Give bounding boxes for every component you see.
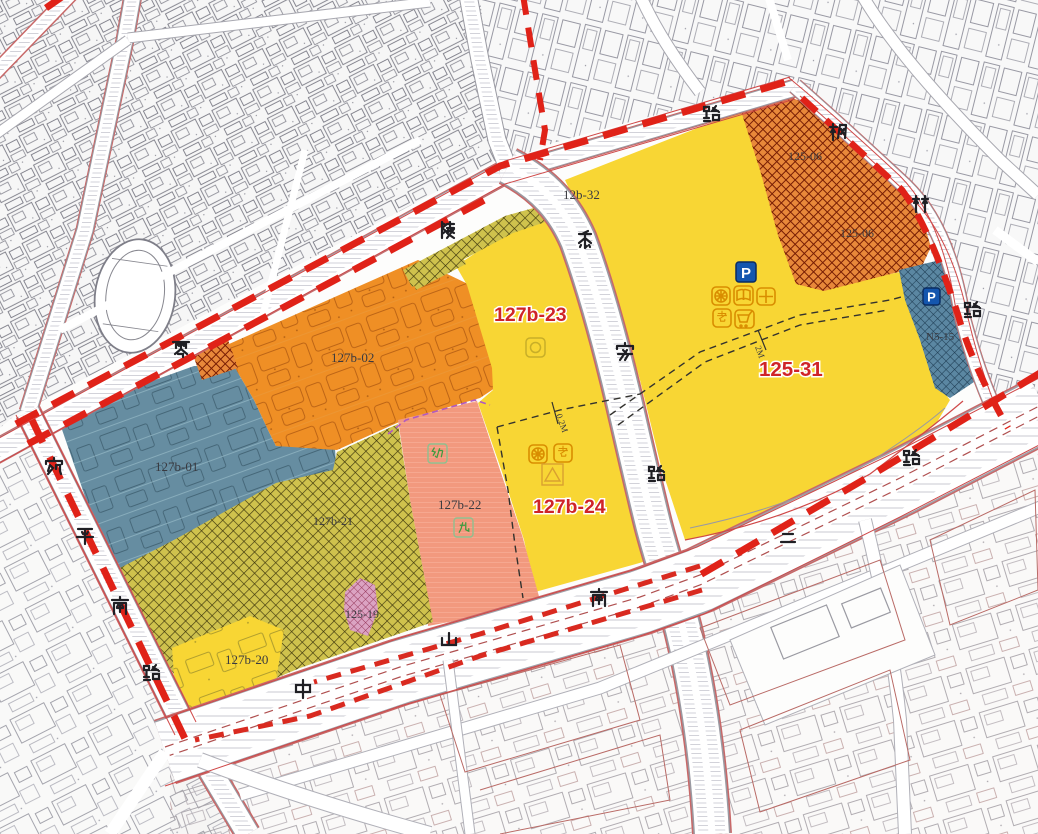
svg-text:125-06: 125-06 bbox=[840, 226, 874, 240]
svg-text:125-31: 125-31 bbox=[759, 358, 823, 381]
svg-text:127b-24: 127b-24 bbox=[533, 496, 606, 518]
svg-text:125-06: 125-06 bbox=[788, 149, 822, 163]
svg-text:127b-01: 127b-01 bbox=[155, 459, 198, 474]
svg-text:127b-23: 127b-23 bbox=[494, 304, 567, 326]
svg-text:127b-21: 127b-21 bbox=[313, 514, 353, 528]
svg-text:P: P bbox=[741, 265, 751, 282]
svg-text:127b-02: 127b-02 bbox=[331, 350, 374, 365]
svg-text:N5-15: N5-15 bbox=[926, 331, 955, 343]
svg-text:127b-20: 127b-20 bbox=[225, 652, 268, 667]
svg-text:127b-22: 127b-22 bbox=[438, 497, 481, 512]
svg-text:12b-32: 12b-32 bbox=[563, 187, 600, 202]
svg-text:P: P bbox=[927, 290, 936, 305]
svg-text:125-19: 125-19 bbox=[345, 607, 379, 621]
